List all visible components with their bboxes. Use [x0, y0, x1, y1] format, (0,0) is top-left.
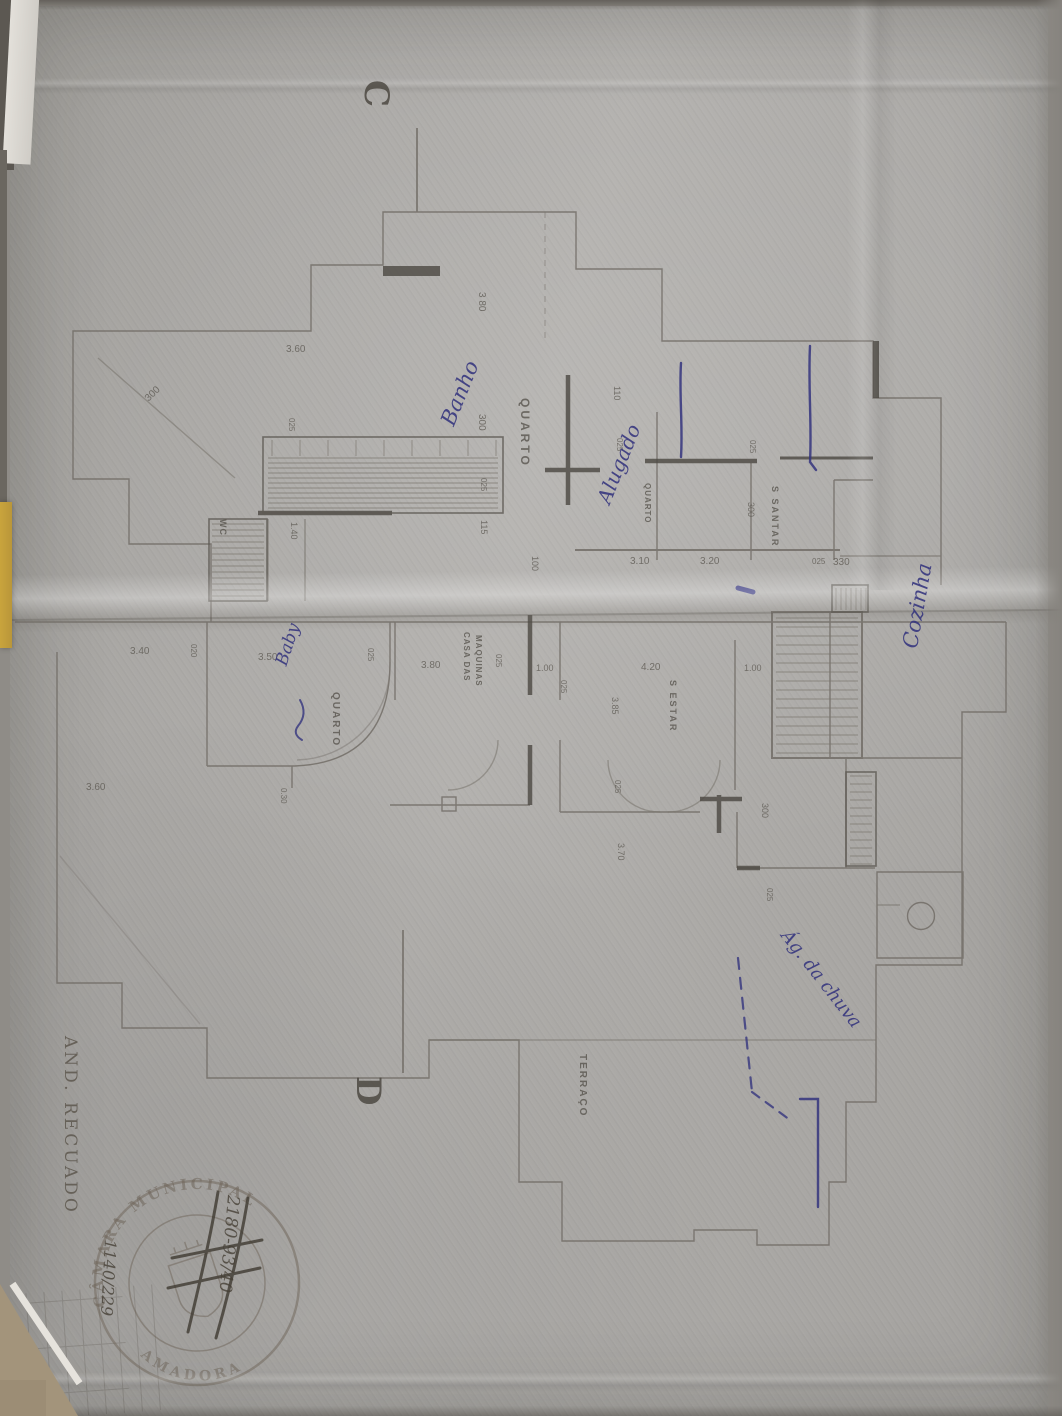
dimension-label: 330 — [833, 557, 850, 568]
room-label: S SANTAR — [770, 486, 780, 547]
dimension-label: 025 — [287, 418, 296, 431]
dimension-label: 3.40 — [130, 646, 149, 657]
room-label: WC — [218, 519, 228, 536]
dimension-label: 025 — [613, 780, 622, 793]
dimension-label: 020 — [189, 644, 198, 657]
vertical-sheen — [846, 0, 896, 590]
room-label: QUARTO — [643, 483, 652, 524]
room-label: QUARTO — [518, 398, 532, 468]
dimension-label: 300 — [476, 414, 487, 431]
photo-background: CÂMARA MUNICIPAL AMADORA QUARTOQUARTOS S… — [0, 0, 1062, 1416]
dimension-label: 1.40 — [289, 522, 299, 540]
plan-side-title: AND. RECUADO — [60, 1036, 80, 1215]
section-marker: D — [348, 1076, 388, 1105]
dimension-label: 025 — [479, 478, 488, 491]
dimension-label: 4.20 — [641, 662, 660, 673]
dimension-label: 025 — [366, 648, 375, 661]
thick-walls — [258, 266, 879, 868]
dimension-label: 1.00 — [744, 663, 762, 673]
dimension-label: 3.60 — [286, 344, 305, 355]
dimension-label: 115 — [479, 520, 489, 534]
room-label: QUARTO — [330, 692, 341, 747]
floorplan-svg: CÂMARA MUNICIPAL AMADORA — [0, 0, 1062, 1416]
room-label: TERRAÇO — [577, 1054, 588, 1117]
stamp-handwritten-left: 1140/229 — [97, 1239, 120, 1317]
dimension-label: 1.00 — [536, 663, 554, 673]
room-label: MAQUINAS — [474, 635, 483, 687]
dimension-label: 300 — [746, 502, 756, 517]
room-label: S ESTAR — [668, 680, 678, 732]
dimension-label: 025 — [748, 440, 757, 453]
dimension-label: 3.80 — [421, 660, 440, 671]
section-marker: C — [356, 80, 396, 107]
room-label: CASA DAS — [462, 632, 471, 681]
dimension-label: 3.85 — [610, 697, 620, 715]
dimension-label: 3.10 — [630, 556, 649, 567]
dimension-label: 100 — [530, 556, 540, 571]
dimension-label: 3.70 — [616, 843, 626, 861]
dimension-label: 110 — [612, 386, 622, 400]
dimension-label: 3.60 — [86, 782, 105, 793]
dimension-label: 3 80 — [476, 292, 487, 311]
dimension-label: 3.20 — [700, 556, 719, 567]
dimension-label: 300 — [760, 803, 770, 818]
dimension-label: 0.30 — [279, 788, 288, 804]
dimension-label: 025 — [494, 654, 503, 667]
dimension-label: 025 — [812, 557, 825, 566]
dimension-label: 025 — [765, 888, 774, 901]
dimension-label: 025 — [559, 680, 568, 693]
